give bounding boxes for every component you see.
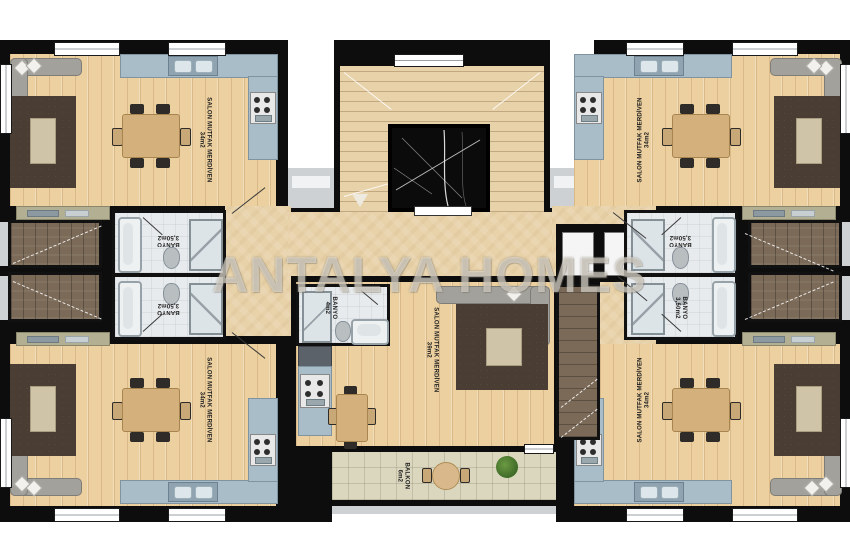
stair-window-left — [0, 222, 8, 266]
duplex-stairs — [748, 272, 842, 322]
stair-direction-marker — [352, 194, 368, 207]
tv-console — [742, 206, 836, 220]
label-bath-top-left: BANYO3,50m2 — [138, 228, 198, 252]
tv-console — [742, 332, 836, 346]
coffee-table — [30, 118, 56, 164]
window — [168, 42, 226, 56]
coffee-table — [796, 118, 822, 164]
bathtub — [712, 217, 736, 273]
watermark: ANTALYA HOMES — [212, 246, 646, 304]
dining-table — [336, 394, 368, 442]
toilet — [335, 321, 351, 342]
kitchen-sink — [168, 56, 218, 76]
tv-console — [16, 332, 110, 346]
label-bath-bottom-right: BANYO3,50m2 — [650, 296, 710, 320]
duplex-stairs — [8, 272, 102, 322]
stove — [250, 434, 276, 466]
dining-chair — [130, 378, 144, 388]
dining-chair — [706, 432, 720, 442]
dining-chair — [706, 104, 720, 114]
duplex-stairs — [556, 284, 600, 440]
stair-window-right — [842, 276, 850, 320]
dining-chair — [730, 402, 741, 420]
coffee-table — [486, 328, 522, 366]
coffee-table — [796, 386, 822, 432]
balcony-chair — [422, 468, 432, 483]
label-balcony: BALKON6m2 — [382, 458, 422, 494]
potted-plant — [496, 456, 518, 478]
stove — [576, 92, 602, 124]
dining-chair — [130, 432, 144, 442]
bathtub — [712, 281, 736, 337]
void-below-balcony — [332, 514, 556, 550]
elevator-door-threshold — [414, 206, 472, 216]
balcony-lower-edge — [332, 506, 556, 514]
duplex-stairs — [748, 220, 842, 268]
label-salon-bottom-middle: SALON MUTFAK MERDİVEN39m2 — [387, 305, 477, 395]
window — [0, 418, 12, 488]
refrigerator — [298, 346, 332, 368]
bathtub — [351, 319, 389, 345]
window — [54, 508, 120, 522]
window — [840, 418, 850, 488]
window — [626, 42, 684, 56]
window — [54, 42, 120, 56]
window — [626, 508, 684, 522]
lower-roof-left-light — [292, 176, 330, 188]
kitchen-sink — [168, 482, 218, 502]
window — [394, 54, 464, 67]
floor-plan: SALON MUTFAK MERDİVEN34m2 SALON MUTFAK M… — [0, 0, 850, 550]
balcony-door-opening — [524, 444, 554, 454]
label-salon-bottom-left: SALON MUTFAK MERDİVEN34m2 — [160, 355, 250, 445]
marble-veins — [392, 128, 486, 208]
tv-console — [16, 206, 110, 220]
balcony-table — [432, 462, 460, 490]
kitchen-sink — [634, 482, 684, 502]
label-bath-top-right: BANYO3,50m2 — [650, 228, 710, 252]
window — [0, 64, 12, 134]
label-salon-top-left: SALON MUTFAK MERDİVEN34m2 — [160, 95, 250, 185]
label-bath-bottom-left: BANYO3,50m2 — [138, 296, 198, 320]
kitchen-sink — [634, 56, 684, 76]
window — [732, 508, 798, 522]
stove — [300, 374, 330, 408]
lower-roof-left — [288, 168, 334, 208]
balcony-chair — [460, 468, 470, 483]
stove — [250, 92, 276, 124]
label-salon-top-right: SALON MUTFAK MERDİVEN34m2 — [600, 95, 690, 185]
elevator-shaft — [388, 124, 490, 212]
window — [168, 508, 226, 522]
dining-chair — [130, 104, 144, 114]
stair-window-right — [842, 222, 850, 266]
dining-chair — [706, 378, 720, 388]
label-salon-bottom-right: SALON MUTFAK MERDİVEN34m2 — [600, 355, 690, 445]
dining-chair — [730, 128, 741, 146]
dining-chair — [130, 158, 144, 168]
duplex-stairs — [8, 220, 102, 268]
window — [732, 42, 798, 56]
dining-chair — [706, 158, 720, 168]
window — [840, 64, 850, 134]
stair-window-left — [0, 276, 8, 320]
coffee-table — [30, 386, 56, 432]
